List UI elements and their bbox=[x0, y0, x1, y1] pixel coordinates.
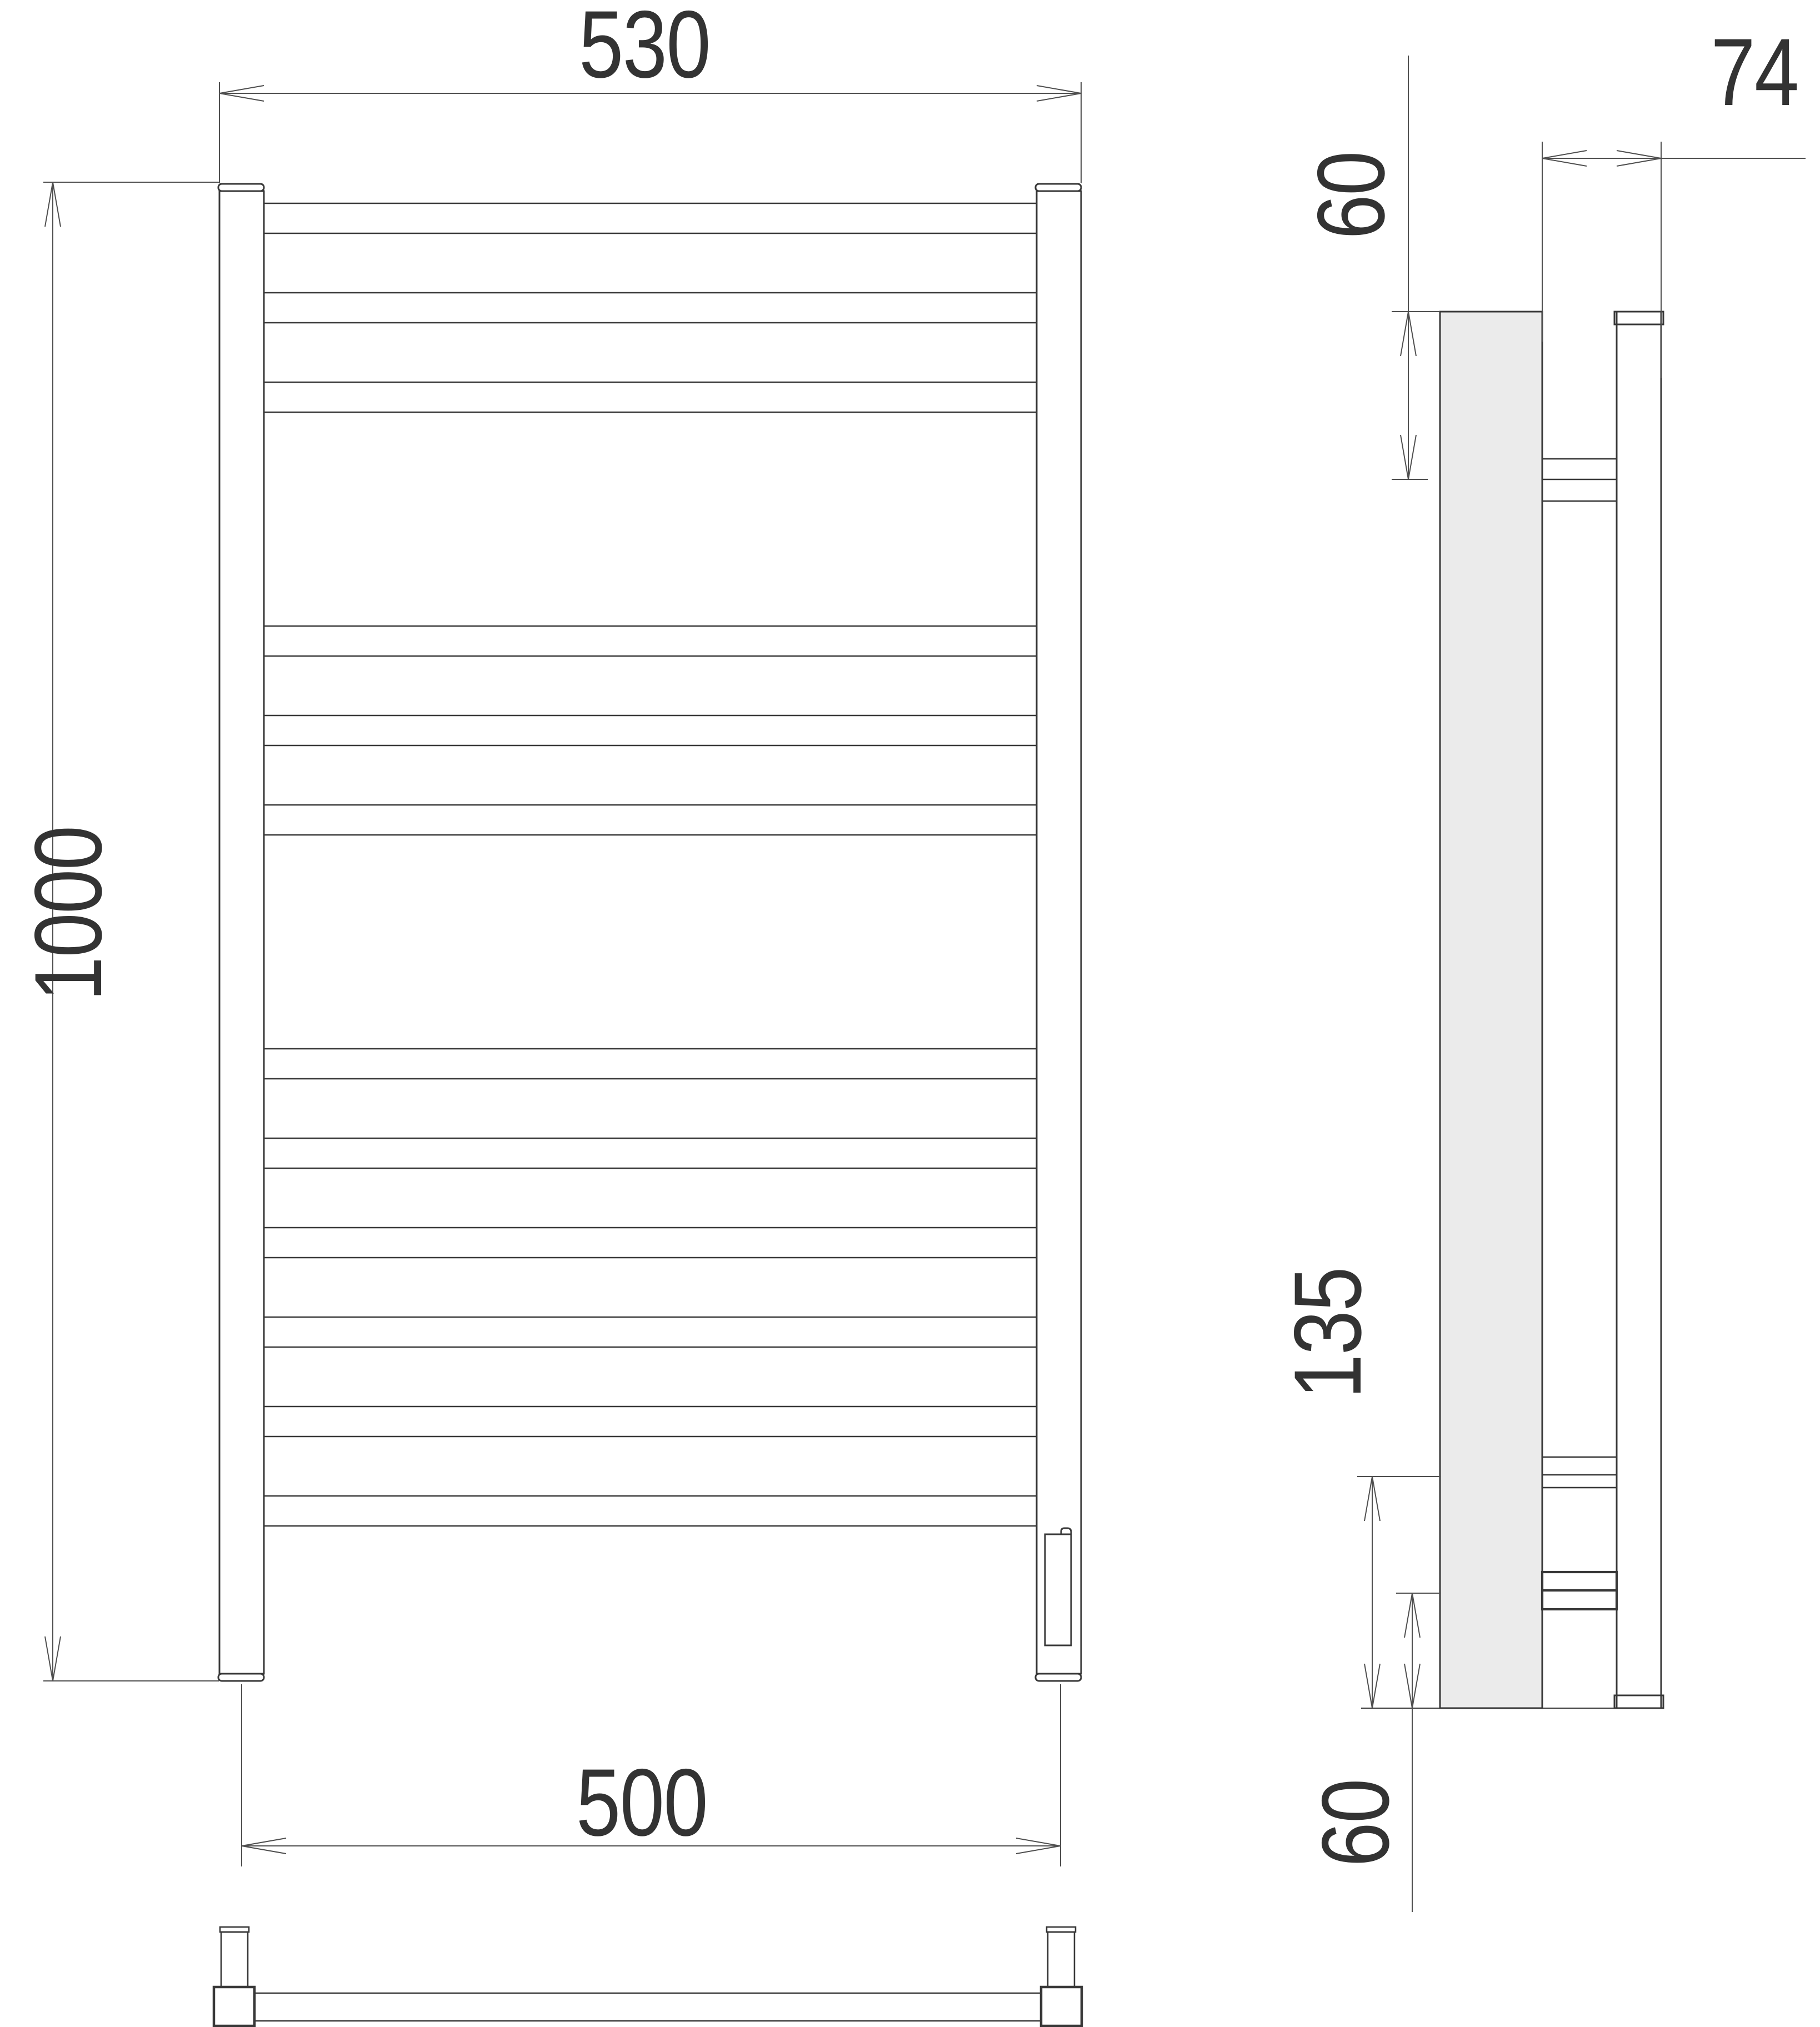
side-view bbox=[1361, 312, 1663, 1708]
bottom-view-right-post bbox=[1041, 1927, 1082, 2026]
bottom-view-tube bbox=[254, 1993, 1041, 2021]
technical-drawing bbox=[0, 0, 1820, 2027]
bottom-view bbox=[214, 1927, 1082, 2026]
dim-135 bbox=[1357, 1477, 1440, 1708]
dim-label-bottom-bracket-offset: 60 bbox=[1308, 1779, 1403, 1866]
dim-60-top bbox=[1392, 56, 1440, 479]
drawing-canvas: 530 1000 500 74 60 135 60 bbox=[0, 0, 1820, 2027]
post-profile bbox=[1440, 312, 1542, 1708]
left-post bbox=[218, 184, 264, 1681]
dim-label-top-width: 530 bbox=[579, 0, 710, 92]
dim-label-top-bracket-offset: 60 bbox=[1303, 152, 1399, 239]
front-view bbox=[218, 184, 1081, 1681]
dim-label-bottom-width: 500 bbox=[576, 1755, 707, 1850]
rungs bbox=[264, 203, 1037, 1526]
dim-label-height: 1000 bbox=[21, 827, 116, 1002]
heating-element-box bbox=[1045, 1528, 1071, 1645]
wall-strip bbox=[1614, 312, 1663, 1708]
element-clamp bbox=[1542, 1457, 1617, 1488]
right-post bbox=[1036, 184, 1081, 1681]
dim-label-depth: 74 bbox=[1711, 24, 1798, 120]
dim-74 bbox=[1542, 142, 1806, 378]
dim-label-bottom-element-offset: 135 bbox=[1280, 1268, 1376, 1399]
bottom-view-left-post bbox=[214, 1927, 254, 2026]
bottom-bracket-arm bbox=[1542, 1572, 1617, 1609]
top-bracket-arm bbox=[1542, 459, 1617, 501]
